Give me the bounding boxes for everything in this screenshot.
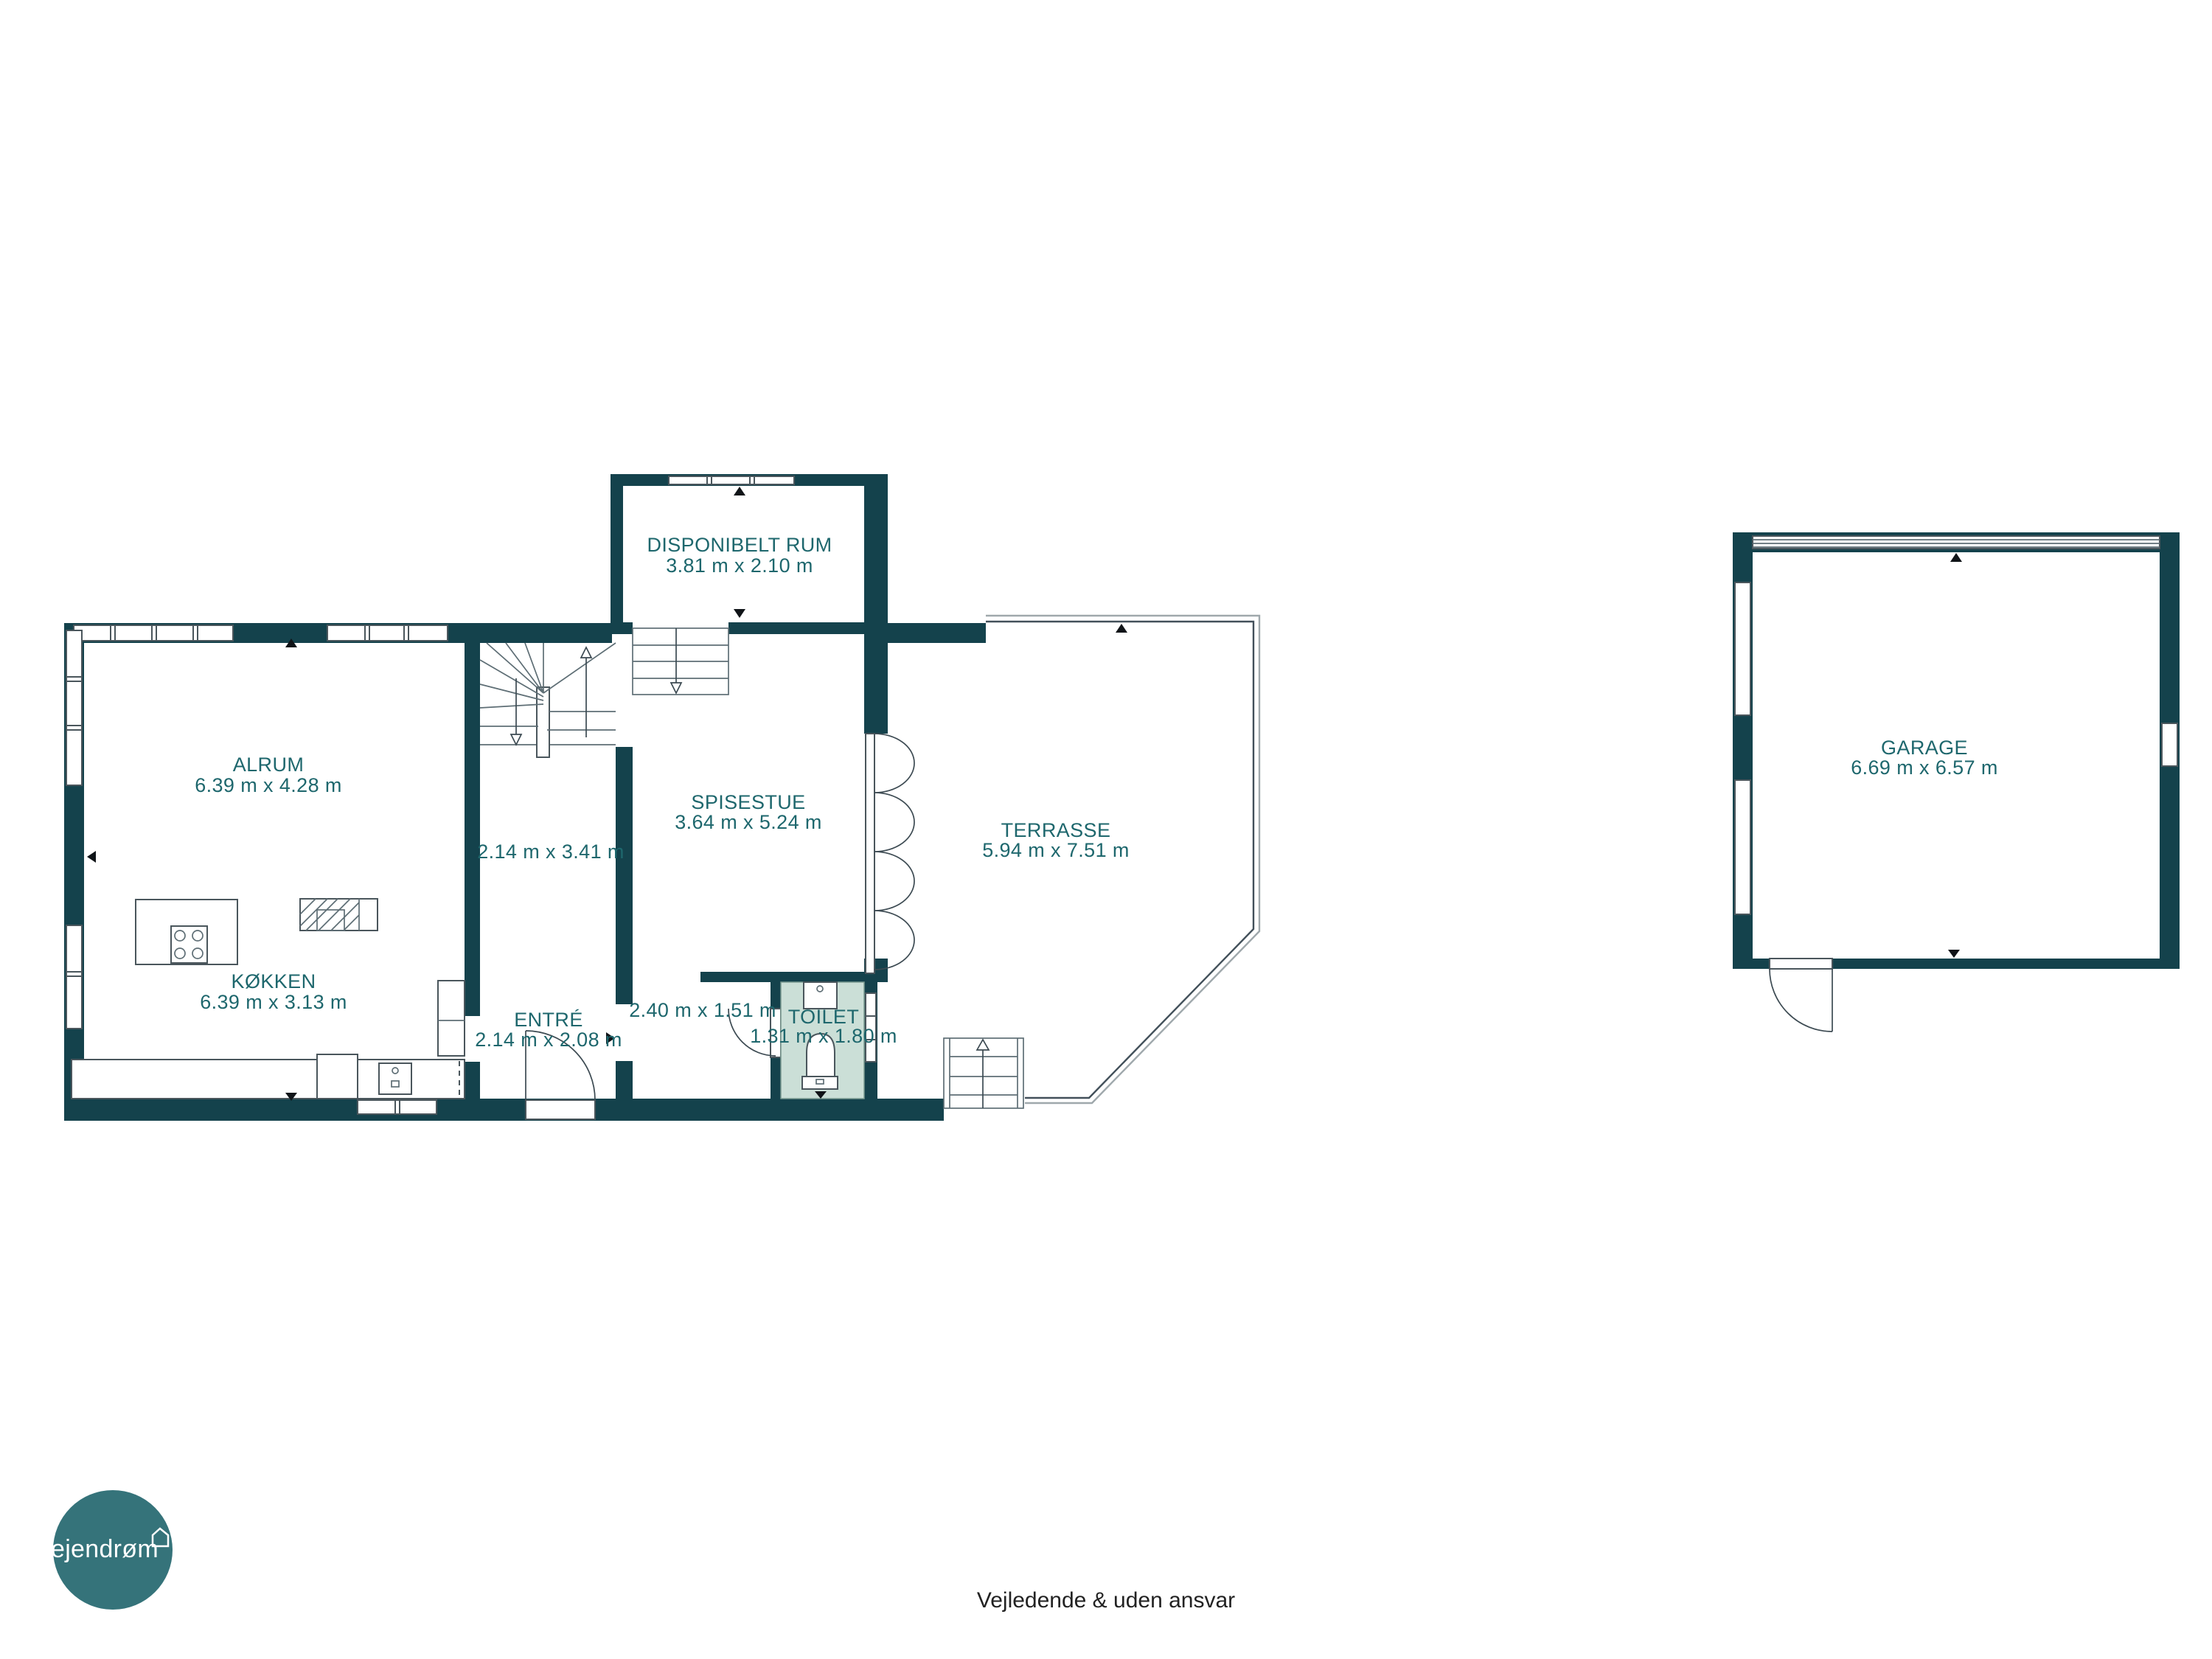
room-dims-spisestue: 3.64 m x 5.24 m xyxy=(675,811,822,833)
front-door-threshold xyxy=(526,1100,595,1119)
room-label-alrum: ALRUM xyxy=(233,754,305,776)
kitchen-appliance xyxy=(317,1054,358,1099)
toilet-tank-icon xyxy=(802,1077,838,1089)
ejendrom-logo: ejendrøm xyxy=(51,1490,173,1610)
garage-side-door-threshold xyxy=(1770,959,1832,969)
room-dims-garage: 6.69 m x 6.57 m xyxy=(1851,757,1998,779)
kitchen-cabinet xyxy=(438,981,465,1056)
room-label-terrasse: TERRASSE xyxy=(1001,819,1111,841)
room-label-disponibelt: DISPONIBELT RUM xyxy=(647,534,832,556)
garage xyxy=(1733,532,2180,1032)
room-dims-stair-hall: 2.14 m x 3.41 m xyxy=(477,841,625,863)
room-dims-hall: 2.40 m x 1.51 m xyxy=(629,999,776,1021)
room-label-entre: ENTRÉ xyxy=(514,1009,583,1031)
room-label-kokken: KØKKEN xyxy=(232,970,316,992)
room-dims-toilet: 1.31 m x 1.80 m xyxy=(750,1025,897,1047)
room-dims-disponibelt: 3.81 m x 2.10 m xyxy=(666,554,813,577)
room-dims-kokken: 6.39 m x 3.13 m xyxy=(200,991,347,1013)
folding-door-track xyxy=(866,734,874,973)
disclaimer-text: Vejledende & uden ansvar xyxy=(977,1588,1235,1613)
floor-plan-canvas: ALRUM 6.39 m x 4.28 m KØKKEN 6.39 m x 3.… xyxy=(0,0,2212,1659)
room-label-spisestue: SPISESTUE xyxy=(691,791,805,813)
terrace-steps xyxy=(944,1038,1023,1108)
room-dims-terrasse: 5.94 m x 7.51 m xyxy=(982,839,1130,861)
dimension-markers xyxy=(87,487,1962,1101)
room-label-garage: GARAGE xyxy=(1881,737,1968,759)
straight-staircase xyxy=(633,628,728,695)
logo-text: ejendrøm xyxy=(51,1535,159,1563)
kitchen-mat xyxy=(300,899,378,931)
room-dims-entre: 2.14 m x 2.08 m xyxy=(475,1029,622,1051)
room-dims-alrum: 6.39 m x 4.28 m xyxy=(195,774,342,796)
winder-staircase xyxy=(480,643,616,757)
